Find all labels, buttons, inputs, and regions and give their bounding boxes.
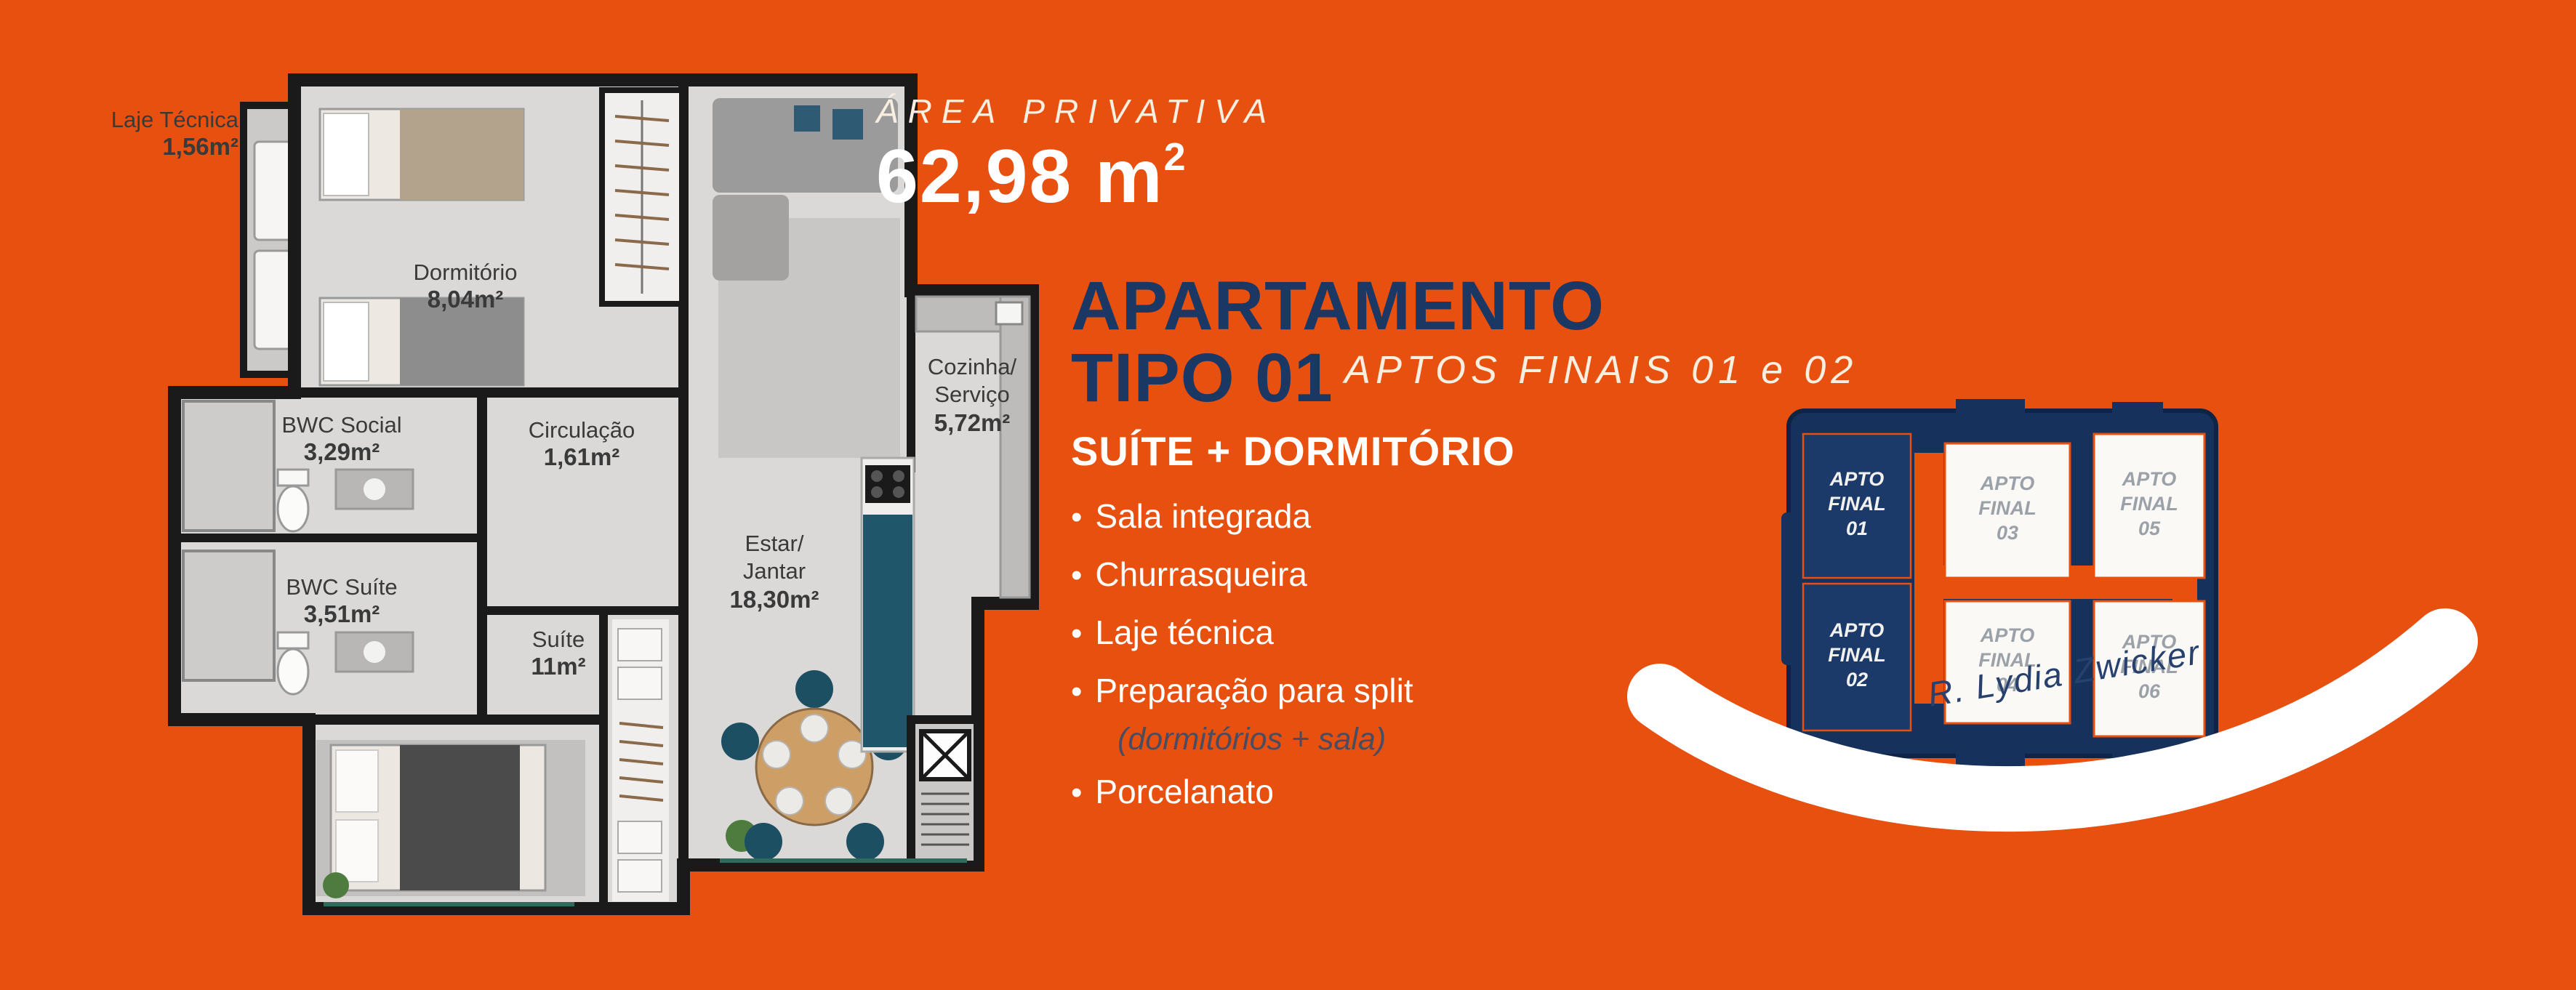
street-swoosh [1618,603,2483,843]
blanket-shape [400,109,523,200]
cooktop-shape [865,465,910,503]
list-item: • Preparação para split [1071,671,1515,710]
private-area-block: ÁREA PRIVATIVA 62,98 m2 [876,92,1276,220]
page-title-line1: APARTAMENTO [1071,270,1605,342]
list-item: • Laje técnica [1071,613,1515,652]
blanket-shape [400,745,520,890]
title-block: APARTAMENTO TIPO 01 APTOS FINAIS 01 e 02 [1071,270,1605,414]
unit-05-label-3: 05 [2138,518,2161,539]
estar-jantar-label-1: Estar/ [745,531,804,556]
pillow-shape [324,113,369,196]
bullet-icon: • [1071,558,1082,594]
feature-label: Churrasqueira [1095,555,1307,594]
bullet-icon: • [1071,616,1082,652]
pillow-shape [336,820,378,882]
island-top-shape [863,515,912,747]
features-block: SUÍTE + DORMITÓRIO • Sala integrada • Ch… [1071,427,1515,830]
feature-label: Porcelanato [1095,772,1274,811]
bwc-social-label: BWC Social [281,412,401,438]
circulacao-label: Circulação [529,417,635,443]
unit-05-label-2: FINAL [2120,493,2178,515]
toilet-shape [278,649,308,694]
suite-furniture [316,740,585,898]
unit-03-label-2: FINAL [1978,497,2036,519]
laje-tecnica-area: 1,56m² [162,133,238,160]
cushion-shape [794,105,820,132]
bwc-suite-area: 3,51m² [304,600,380,627]
laje-tecnica-label: Laje Técnica [111,107,239,132]
features-heading: SUÍTE + DORMITÓRIO [1071,427,1515,475]
private-area-value: 62,98 m2 [876,134,1276,220]
suite-label: Suíte [532,627,585,652]
estar-jantar-area: 18,30m² [730,586,819,613]
feature-label: Laje técnica [1095,613,1274,652]
sink-shape [364,478,385,500]
feature-label: Preparação para split [1095,671,1413,710]
sink-shape [364,641,385,663]
list-item: • Sala integrada [1071,496,1515,536]
bwc-suite-label: BWC Suíte [286,574,397,600]
unit-03-label-3: 03 [1997,522,2018,544]
closet-strip [612,619,669,901]
page-subtitle: APTOS FINAIS 01 e 02 [1344,347,1858,393]
plant-shape [323,872,349,898]
features-list: • Sala integrada • Churrasqueira • Laje … [1071,496,1515,811]
cozinha-area: 5,72m² [934,409,1011,436]
private-area-number: 62,98 m [876,134,1164,219]
elevator-stairs-block [911,720,978,865]
wardrobe-shape [602,90,682,304]
cozinha-label-2: Serviço [934,382,1009,407]
cushion-shape [832,109,863,140]
feature-label: Sala integrada [1095,496,1311,536]
dormitorio-area: 8,04m² [428,286,504,313]
pillow-shape [336,750,378,812]
unit-01-label-3: 01 [1846,518,1868,539]
bullet-icon: • [1071,499,1082,536]
dormitorio-label: Dormitório [414,259,518,285]
sink-shape [996,302,1022,324]
unit-01-label-1: APTO [1829,468,1885,490]
street-swoosh-svg [1618,603,2483,843]
sofa-chaise-shape [713,195,789,281]
private-area-sup: 2 [1164,135,1187,179]
bullet-icon: • [1071,775,1082,811]
unit-03-label-1: APTO [1980,472,2035,494]
unit-05-label-1: APTO [2122,468,2177,490]
unit-01-label-2: FINAL [1828,493,1885,515]
suite-area: 11m² [531,653,585,680]
flyer-canvas: Laje Técnica 1,56m² Dormitório 8,04m² BW… [0,0,2576,990]
private-area-label: ÁREA PRIVATIVA [876,92,1276,131]
cozinha-label-1: Cozinha/ [928,354,1017,379]
list-item: • Churrasqueira [1071,555,1515,594]
toilet-shape [278,486,308,531]
bwc-social-area: 3,29m² [304,438,380,465]
feature-note: (dormitórios + sala) [1118,722,1515,757]
estar-jantar-label-2: Jantar [743,558,806,584]
circulacao-area: 1,61m² [544,443,620,470]
list-item: • Porcelanato [1071,772,1515,811]
bullet-icon: • [1071,674,1082,710]
pillow-shape [324,302,369,381]
